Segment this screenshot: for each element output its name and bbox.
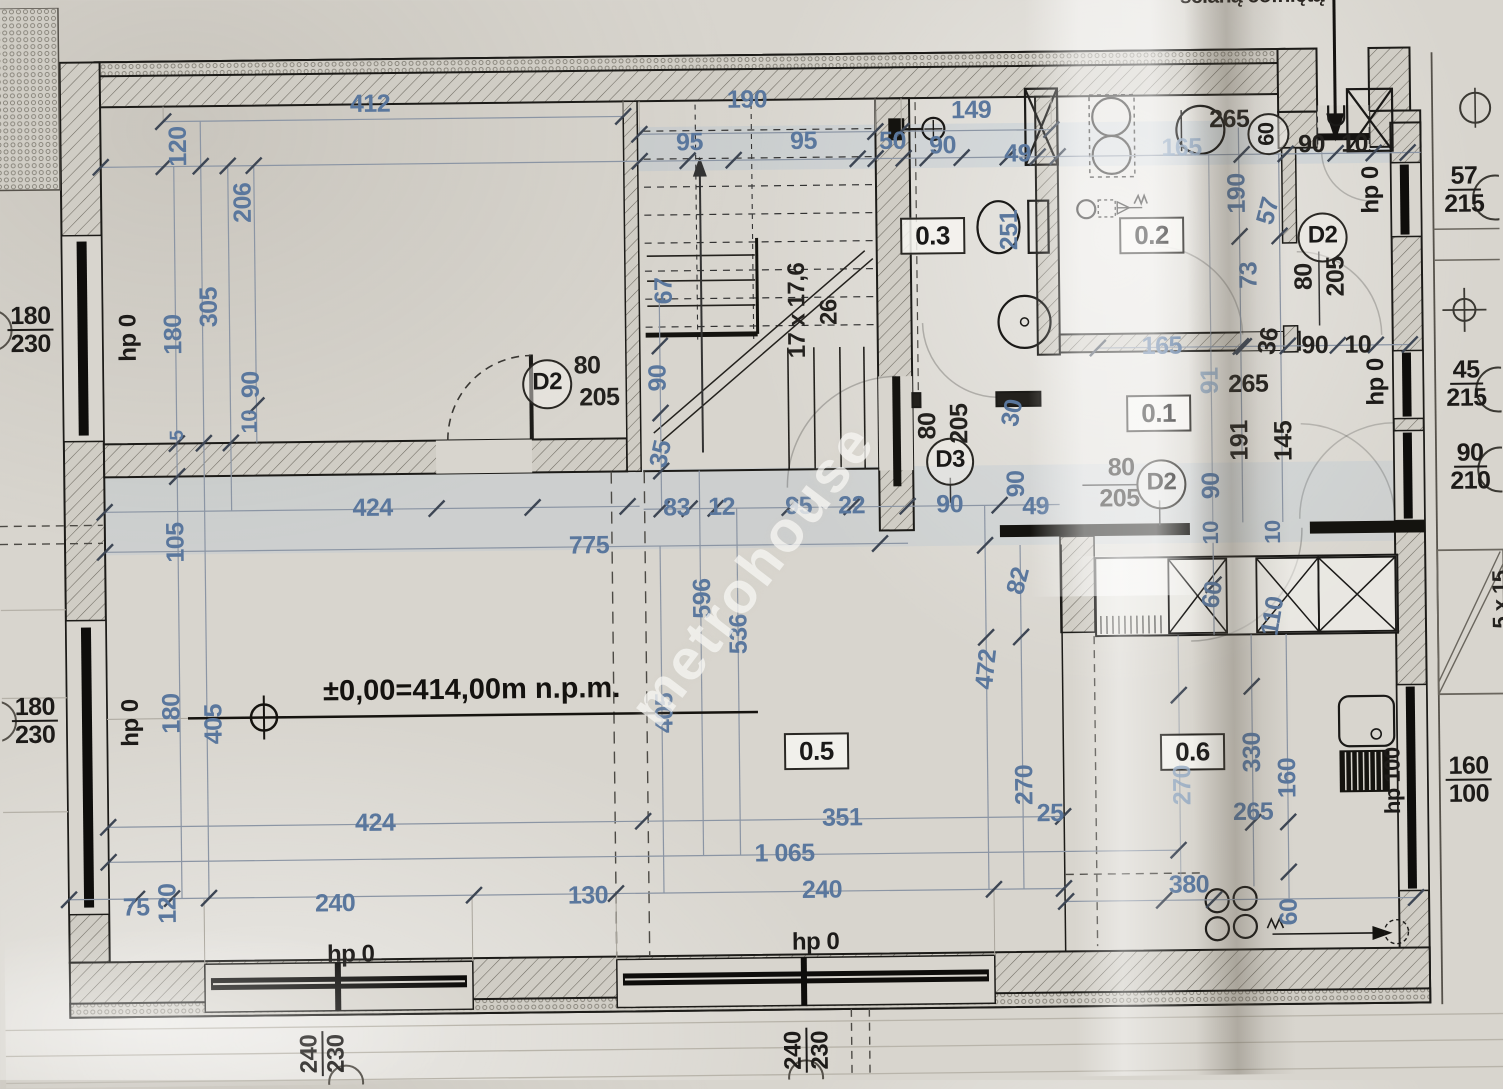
dimension-label: 380: [1169, 870, 1210, 899]
dimension-label-dark: 5 x 15: [1487, 570, 1503, 628]
dimension-label-dark: 265: [1209, 105, 1250, 134]
dimension-label-dark: 10: [1344, 330, 1371, 359]
dimension-label: 775: [569, 531, 610, 560]
dimension-label: 83: [663, 493, 690, 522]
dimension-label: 90: [929, 131, 956, 160]
dimension-label-dark: 205: [1099, 484, 1140, 513]
room-number: 0.1: [1126, 395, 1191, 433]
dimension-label: 90: [1197, 472, 1226, 499]
parapet-label: hp 0: [117, 699, 146, 747]
room-number: 0.3: [900, 217, 965, 255]
dimension-label: 240: [802, 875, 843, 904]
dimension-label: 251: [995, 210, 1024, 251]
dimension-label: 120: [153, 883, 182, 924]
window-size-label: 180230: [12, 694, 59, 749]
window-size-label: 240230: [780, 1028, 833, 1073]
dimension-label-dark: 80: [1108, 453, 1135, 482]
elevation-note: ±0,00=414,00m n.p.m.: [323, 672, 621, 708]
dimension-label: 110: [1255, 595, 1290, 638]
parapet-label: hp 0: [792, 928, 840, 957]
dimension-label: 149: [951, 96, 992, 125]
dimension-label: 405: [199, 704, 228, 745]
dimension-label-dark: 205: [945, 403, 974, 444]
dimension-label: 190: [727, 85, 768, 114]
floor-plan: 41212020630518090105105424hp 01802301802…: [0, 0, 1503, 1088]
margin-note: ścianą cofniętą: [1180, 0, 1324, 9]
dimension-label-faint: 91: [1196, 367, 1225, 394]
dimension-label: 10: [1260, 520, 1286, 544]
dimension-label: 60: [1275, 898, 1304, 925]
parapet-label: hp 0: [327, 940, 375, 969]
dimension-label: 95: [676, 128, 703, 157]
dimension-label: 165: [1142, 332, 1183, 361]
dimension-label: 82: [1001, 564, 1036, 597]
dimension-label: 412: [350, 90, 391, 119]
dimension-label: 351: [822, 803, 863, 832]
parapet-label: hp 0: [1362, 358, 1391, 406]
room-number: 0.5: [784, 732, 849, 770]
dimension-label-dark: 191: [1225, 420, 1254, 461]
dimension-label-dark: 26: [815, 299, 843, 325]
door-symbol: D2: [1136, 459, 1187, 510]
dimension-label: 1 065: [754, 839, 814, 869]
dimension-label: 12: [708, 493, 735, 522]
dimension-label-dark: 10: [1341, 129, 1368, 158]
dimension-label-dark: 80: [573, 351, 600, 380]
dimension-label: 472: [970, 648, 1003, 691]
window-size-label: 160100: [1445, 752, 1492, 807]
dimension-label-dark: 145: [1269, 421, 1298, 462]
dimension-label: 190: [1222, 173, 1251, 214]
dimension-label-dark: 265: [1228, 370, 1269, 399]
window-size-label: 45215: [1446, 356, 1487, 411]
dimension-label-dark: 17 x 17,6: [783, 263, 812, 359]
dimension-label: 57: [1251, 195, 1286, 228]
dimension-label: 10: [1198, 521, 1224, 545]
door-symbol: 60: [1247, 113, 1289, 155]
dimension-label-dark: 90: [1298, 130, 1325, 159]
parapet-label: hp 0: [114, 314, 143, 362]
dimension-label-dark: 80: [1289, 263, 1318, 290]
window-size-label: 180230: [7, 303, 54, 358]
dimension-label: 180: [159, 314, 188, 355]
dimension-label: 90: [936, 490, 963, 519]
dimension-label-dark: 36: [1252, 326, 1285, 357]
dimension-label: 180: [157, 693, 186, 734]
dimension-label: 120: [164, 126, 193, 167]
dimension-label: 73: [1234, 262, 1263, 289]
dimension-label: 265: [1233, 798, 1274, 827]
dimension-label-dark: 205: [579, 383, 620, 412]
dimension-label: 424: [352, 494, 393, 523]
window-size-label: 90210: [1450, 439, 1491, 494]
window-size-label: 240230: [296, 1031, 349, 1076]
window-size-label: 57215: [1444, 162, 1485, 217]
dimension-label: 30: [996, 397, 1030, 429]
dimension-label: 50: [879, 127, 906, 156]
parapet-label: hp 100: [1379, 747, 1406, 814]
dimension-label: 75: [123, 893, 150, 922]
dimension-label-dark: 205: [1321, 256, 1350, 297]
dimension-label: 49: [1004, 139, 1031, 168]
dimension-label: 90: [644, 364, 673, 391]
dimension-label: 10: [236, 410, 262, 434]
dimension-label: 49: [1022, 492, 1049, 521]
dimension-label: 90: [237, 371, 266, 398]
dimension-label: 330: [1238, 732, 1267, 773]
dimension-label: 35: [644, 438, 678, 470]
dimension-label: 130: [568, 881, 609, 910]
dimension-label: 206: [228, 182, 257, 223]
dimension-label-faint: 165: [1161, 133, 1202, 162]
dimension-label: 160: [1273, 758, 1302, 799]
dimension-label: 305: [195, 287, 224, 328]
dimension-label: 105: [161, 522, 190, 563]
dimension-label: 5: [167, 430, 189, 440]
door-symbol: D3: [926, 437, 975, 486]
dimension-label: 60: [1196, 579, 1229, 610]
dimension-label-dark: 80: [913, 412, 942, 439]
dimension-label: 67: [650, 277, 679, 304]
parapet-label: hp 0: [1357, 166, 1386, 214]
dimension-label: 95: [790, 127, 817, 156]
dimension-label: 270: [1010, 765, 1039, 806]
dimension-label: 424: [355, 809, 396, 838]
dimension-label: 240: [315, 889, 356, 918]
plan-labels: 41212020630518090105105424hp 01802301802…: [0, 0, 1503, 1088]
door-symbol: D2: [522, 359, 573, 410]
dimension-label: 25: [1037, 799, 1064, 828]
dimension-label-dark: 90: [1301, 331, 1328, 360]
dimension-label-faint: 270: [1168, 765, 1197, 806]
room-number: 0.2: [1119, 217, 1184, 255]
